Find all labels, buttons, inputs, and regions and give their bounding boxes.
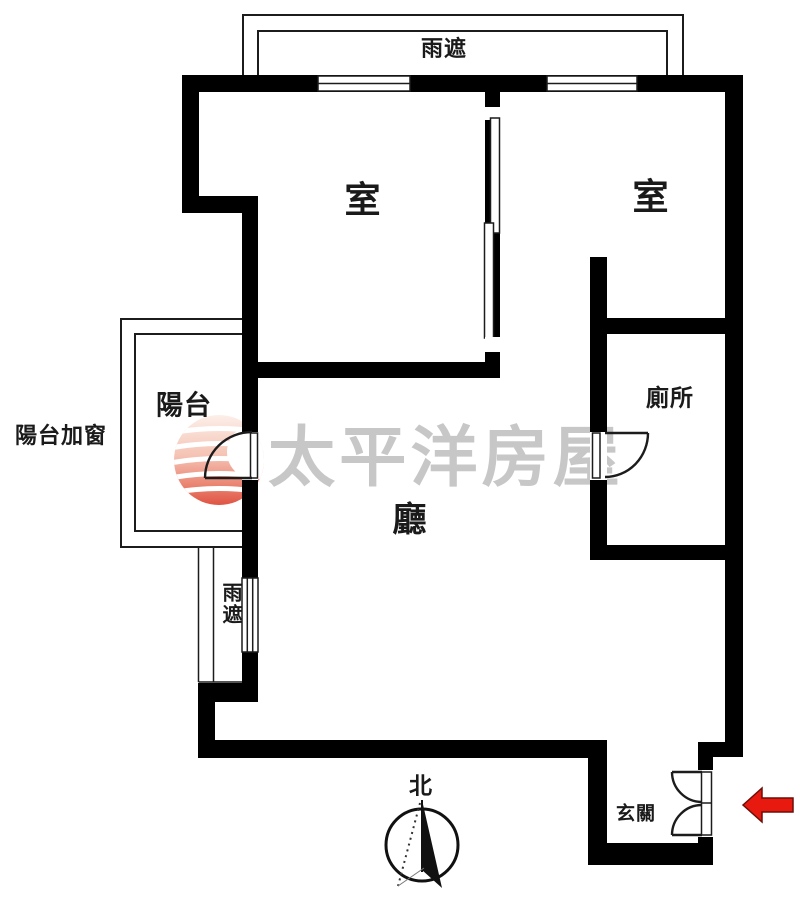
- label-toilet: 廁所: [646, 387, 694, 410]
- door-entry: [672, 770, 713, 837]
- label-bedroom-left: 室: [344, 182, 381, 218]
- watermark-logo-icon: [170, 415, 281, 505]
- floor-plan-canvas: 太平洋房屋: [0, 0, 800, 914]
- compass-icon: [386, 800, 458, 888]
- label-balcony-note: 陽台加窗: [15, 425, 107, 447]
- wall-right: [725, 75, 743, 757]
- wall-bedroom1-bottom: [242, 362, 500, 378]
- wall-left-upper: [182, 75, 199, 213]
- label-balcony: 陽台: [156, 393, 212, 420]
- window-top-left: [318, 76, 410, 91]
- label-living-room: 廳: [393, 503, 428, 537]
- door-balcony-leaf-frame: [251, 433, 258, 478]
- label-entrance: 玄關: [616, 805, 656, 824]
- label-canopy-top: 雨遮: [421, 38, 467, 60]
- window-west: [242, 578, 258, 652]
- watermark-layer: 太平洋房屋: [170, 415, 624, 505]
- door-toilet-frame: [593, 433, 601, 478]
- sliding-door-pocket-bottom: [485, 337, 500, 352]
- entry-arrow-icon: [743, 788, 793, 822]
- sliding-door-panel-left: [485, 223, 494, 338]
- wall-toilet-bottom: [590, 545, 725, 560]
- door-entry-top-arc: [672, 772, 702, 802]
- window-top-right: [547, 76, 637, 91]
- label-north: 北: [409, 775, 433, 798]
- door-entry-bottom-arc: [672, 805, 702, 835]
- label-canopy-left: 雨遮: [220, 582, 240, 626]
- wall-bottom: [198, 740, 607, 758]
- floor-plan: 太平洋房屋: [0, 0, 800, 914]
- wall-toilet-top: [590, 318, 725, 334]
- wall-entry-bottom: [588, 843, 713, 865]
- wall-top: [182, 75, 743, 92]
- watermark-text: 太平洋房屋: [268, 420, 624, 494]
- wall-toilet-west: [590, 257, 607, 560]
- label-bedroom-right: 室: [632, 179, 669, 215]
- sliding-door-panel-right: [491, 118, 500, 233]
